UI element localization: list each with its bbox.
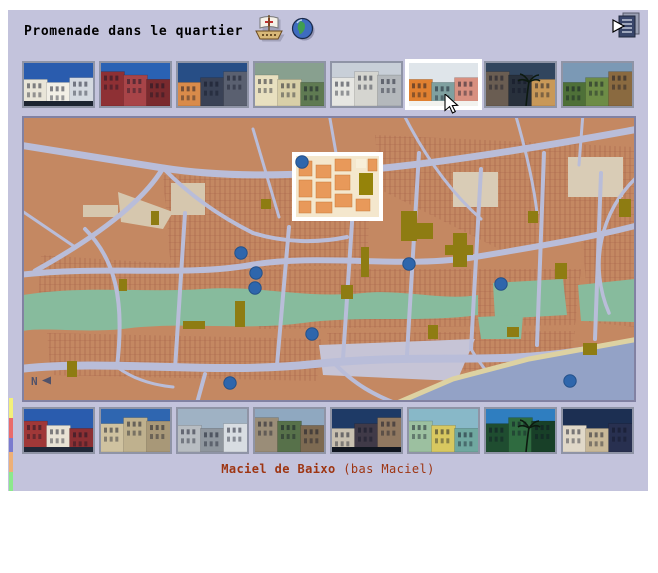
district-caption: Maciel de Baixo (bas Maciel)	[8, 462, 648, 476]
color-strip-segment	[9, 452, 13, 472]
color-strip-segment	[9, 418, 13, 438]
district-name-translation: (bas Maciel)	[343, 462, 435, 476]
color-strip-segment	[9, 472, 13, 491]
top-thumbnail-4[interactable]	[253, 61, 326, 108]
map-location-marker[interactable]	[235, 247, 247, 259]
map-location-marker[interactable]	[249, 282, 261, 294]
caravel-ship-icon[interactable]	[254, 14, 286, 44]
bottom-thumbnail-2[interactable]	[99, 407, 172, 454]
page-title: Promenade dans le quartier	[24, 24, 243, 39]
top-thumbnail-1[interactable]	[22, 61, 95, 108]
bottom-thumbnail-6[interactable]	[407, 407, 480, 454]
map-location-marker[interactable]	[250, 267, 262, 279]
bottom-thumbnail-strip	[22, 407, 634, 454]
bottom-thumbnail-4[interactable]	[253, 407, 326, 454]
map-location-marker[interactable]	[564, 375, 576, 387]
district-name: Maciel de Baixo	[221, 462, 335, 476]
top-thumbnail-5[interactable]	[330, 61, 403, 108]
bottom-thumbnail-1[interactable]	[22, 407, 95, 454]
bottom-thumbnail-5[interactable]	[330, 407, 403, 454]
svg-text:N: N	[31, 375, 38, 388]
color-index-strip	[9, 398, 13, 491]
color-strip-segment	[9, 398, 13, 418]
bottom-thumbnail-7[interactable]	[484, 407, 557, 454]
top-thumbnail-strip	[22, 61, 634, 108]
exit-document-icon[interactable]	[612, 11, 642, 39]
district-map[interactable]: N	[22, 116, 636, 402]
app-panel: Promenade dans le quartier	[8, 10, 648, 491]
bottom-thumbnail-8[interactable]	[561, 407, 634, 454]
bottom-thumbnail-3[interactable]	[176, 407, 249, 454]
map-location-marker[interactable]	[495, 278, 507, 290]
app-window: Promenade dans le quartier	[0, 0, 658, 573]
map-location-marker[interactable]	[306, 328, 318, 340]
map-location-marker[interactable]	[296, 156, 308, 168]
top-thumbnail-8[interactable]	[561, 61, 634, 108]
globe-icon[interactable]	[291, 17, 318, 43]
top-thumbnail-7[interactable]	[484, 61, 557, 108]
map-location-marker[interactable]	[224, 377, 236, 389]
map-location-marker[interactable]	[403, 258, 415, 270]
top-thumbnail-3[interactable]	[176, 61, 249, 108]
top-thumbnail-2[interactable]	[99, 61, 172, 108]
top-thumbnail-6[interactable]	[407, 61, 480, 108]
color-strip-segment	[9, 438, 13, 452]
